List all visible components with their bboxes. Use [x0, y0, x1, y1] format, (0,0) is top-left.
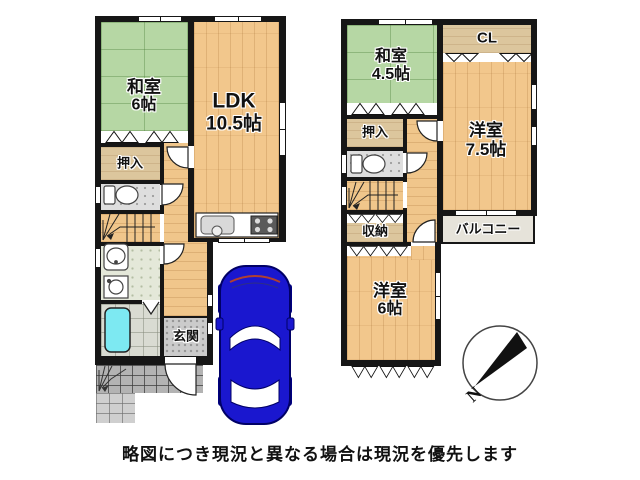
label-shuno: 収納	[362, 225, 388, 240]
washitsu6-closet-door-band	[101, 131, 188, 143]
room-toilet-2f	[347, 151, 403, 177]
hallway-2f	[407, 119, 437, 242]
window-ldk-bottom-b	[244, 238, 270, 243]
cl-door-band	[443, 53, 531, 62]
window-yoshitsu75-right-a	[531, 84, 537, 110]
window-ldk-right-b	[279, 129, 286, 156]
floor-plan-canvas: N 和室6帖 LDK10.5帖 押入 玄関 和室4.5帖 CL 洋室7.5帖 押…	[0, 0, 640, 480]
entrance-approach-tiles	[96, 365, 203, 393]
car-rear-window	[231, 380, 279, 408]
car-windshield	[230, 326, 280, 350]
label-yoshitsu-6: 洋室6帖	[373, 282, 407, 319]
compass-n-label: N	[462, 382, 485, 406]
washitsu45-closet-door-band	[347, 103, 437, 115]
door-gap-stairs-2f	[403, 182, 407, 208]
window-1f-top-left-a	[138, 16, 161, 22]
room-bathroom-1f	[101, 304, 160, 356]
label-yoshitsu-75: 洋室7.5帖	[466, 121, 507, 159]
window-2f-top-a	[378, 19, 406, 25]
entrance-approach-lower-tiles	[96, 393, 135, 423]
window-toilet-1f-left	[95, 186, 101, 204]
room-washitsu-6-1f	[101, 22, 188, 131]
door-gap-ldk	[188, 146, 194, 168]
compass: N	[462, 326, 537, 406]
window-yoshitsu75-right-b	[531, 126, 537, 146]
room-toilet-1f	[101, 184, 160, 210]
label-genkan: 玄関	[173, 330, 199, 345]
door-gap-genkan	[165, 357, 196, 365]
label-oshiire-1f: 押入	[117, 157, 143, 172]
window-toilet-2f-left	[341, 154, 347, 174]
stairs-area-2f	[347, 181, 403, 210]
disclaimer-caption: 略図につき現況と異なる場合は現況を優先します	[0, 440, 640, 465]
window-yoshitsu6-right-a	[435, 272, 441, 297]
window-stairs-2f-left	[341, 186, 347, 206]
room-washroom-1f	[101, 246, 160, 300]
yoshitsu6-top-door-band	[347, 246, 411, 256]
window-1f-top-right-a	[214, 16, 239, 22]
stairs-area-1f	[101, 214, 160, 242]
label-oshiire-2f: 押入	[362, 126, 388, 141]
label-ldk: LDK10.5帖	[206, 90, 262, 135]
window-ldk-right-a	[279, 102, 286, 130]
door-gap-yoshitsu75	[437, 121, 443, 141]
window-ldk-bottom-a	[218, 238, 245, 243]
window-balcony-slider-a	[455, 210, 487, 216]
window-balcony-slider-b	[486, 210, 517, 216]
door-gap-washroom-1f	[160, 246, 164, 264]
door-gap-stairs-1f	[160, 214, 164, 242]
hallway-1f-upper	[164, 143, 188, 242]
room-yoshitsu-6-2f-right	[411, 246, 435, 260]
hallway-1f-lower	[164, 242, 207, 316]
label-washitsu-45-2f: 和室4.5帖	[372, 48, 410, 84]
window-genkan-side-a	[207, 294, 213, 307]
window-1f-top-right-b	[238, 16, 262, 22]
door-gap-yoshitsu6	[411, 242, 435, 246]
door-gap-toilet-1f	[160, 185, 164, 205]
window-genkan-side-b	[207, 322, 213, 335]
window-washroom-left	[95, 248, 101, 268]
car	[216, 266, 294, 424]
label-cl: CL	[477, 31, 497, 48]
compass-needle	[475, 332, 527, 386]
window-yoshitsu6-right-b	[435, 296, 441, 320]
shuno-door-band	[347, 214, 403, 223]
label-washitsu-6-1f: 和室6帖	[127, 78, 161, 115]
window-2f-top-b	[405, 19, 433, 25]
door-gap-bathroom-1f	[142, 300, 160, 304]
door-gap-toilet-2f	[403, 153, 407, 173]
label-balcony: バルコニー	[456, 223, 521, 238]
window-1f-top-left-b	[160, 16, 182, 22]
